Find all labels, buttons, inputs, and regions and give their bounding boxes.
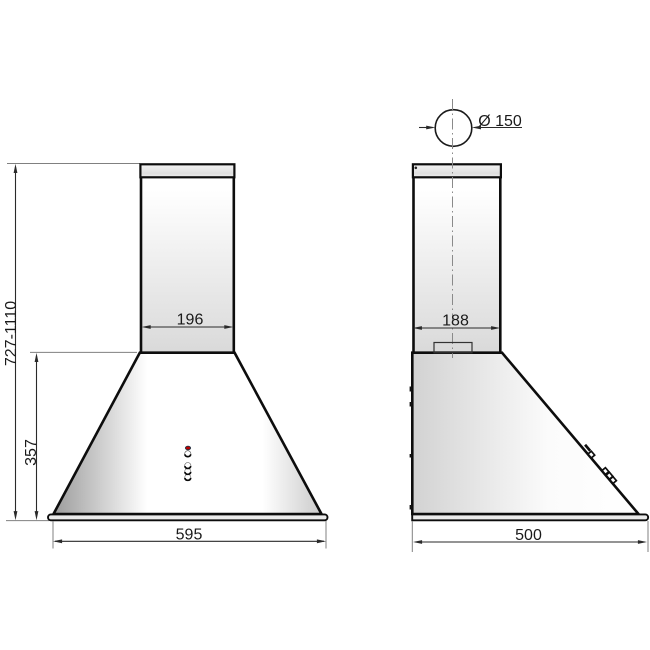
svg-text:357: 357 xyxy=(23,439,40,466)
svg-text:Ø 150: Ø 150 xyxy=(478,113,522,130)
svg-text:196: 196 xyxy=(177,312,204,329)
svg-text:188: 188 xyxy=(442,313,469,330)
svg-text:595: 595 xyxy=(176,527,203,544)
svg-text:727-1110: 727-1110 xyxy=(3,301,20,366)
svg-text:500: 500 xyxy=(515,527,542,544)
